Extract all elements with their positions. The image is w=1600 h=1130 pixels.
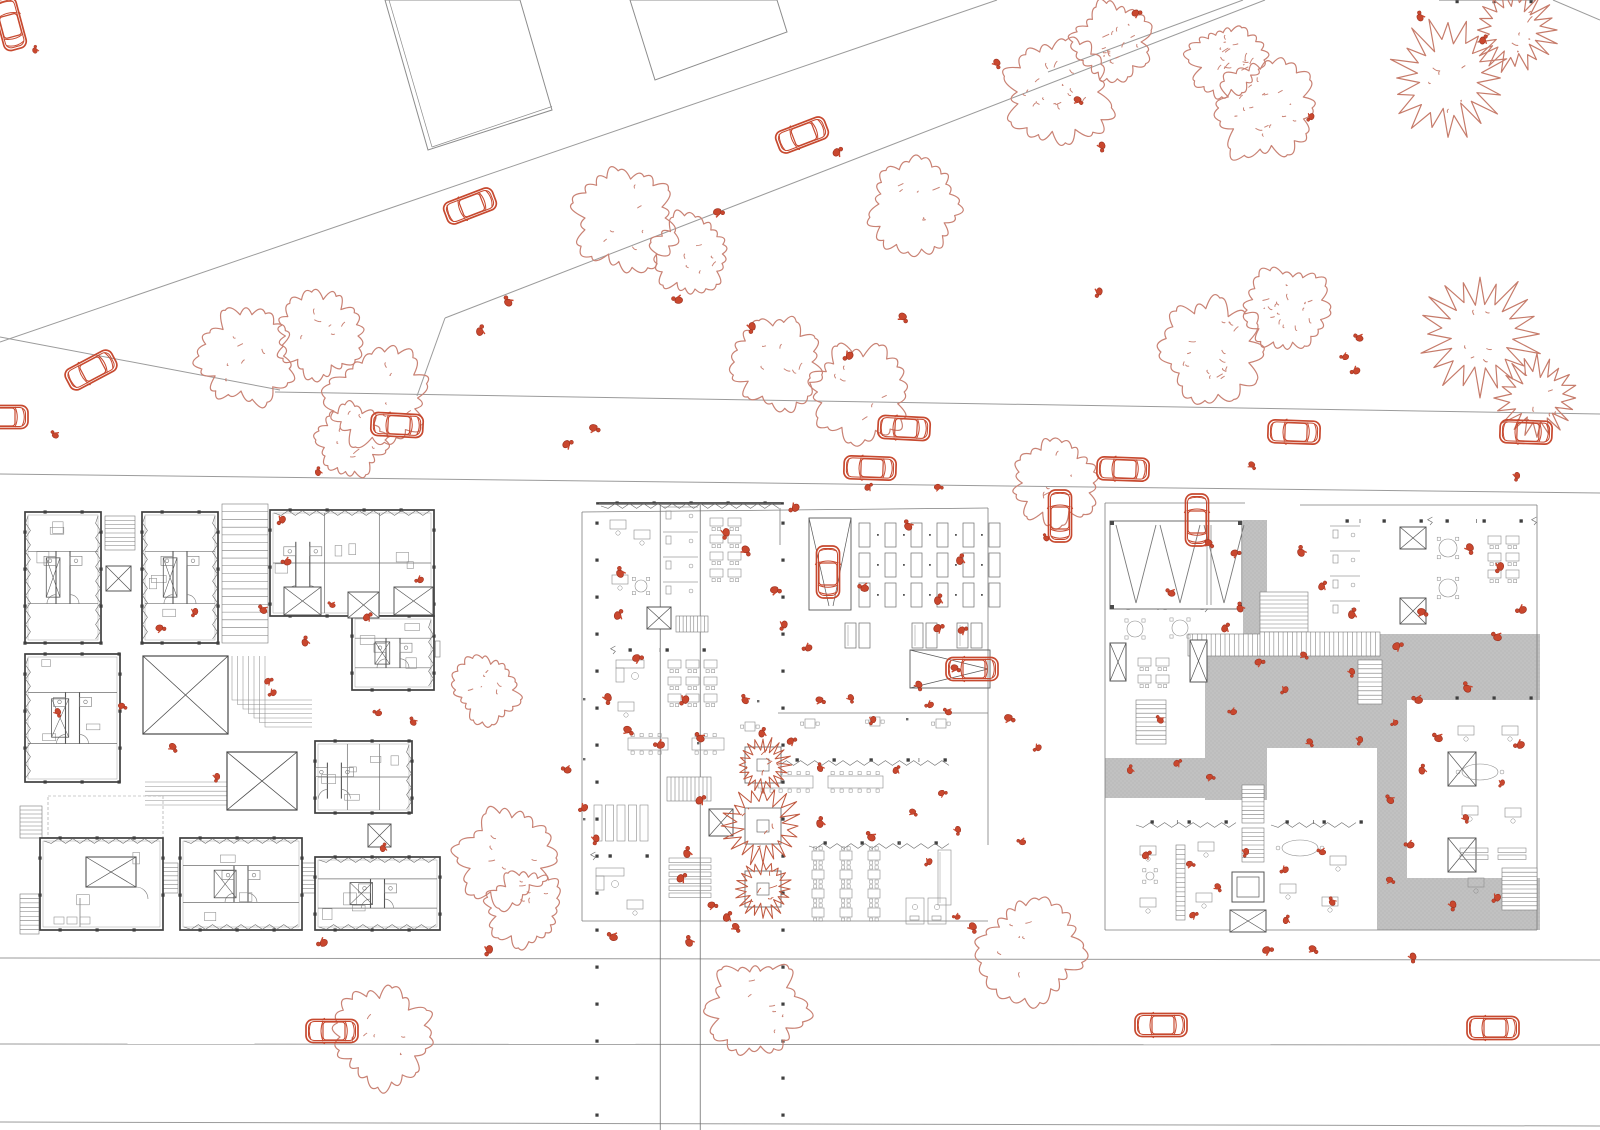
person-figure <box>952 913 960 919</box>
stair <box>1358 660 1382 704</box>
tree <box>1243 267 1331 349</box>
tree <box>1157 295 1264 405</box>
middle-building <box>582 501 1000 1130</box>
paved-path <box>1380 634 1540 696</box>
person-figure <box>863 481 875 493</box>
tree <box>1013 438 1099 529</box>
person-figure <box>1352 331 1365 343</box>
person-figure <box>481 944 494 958</box>
furniture <box>596 868 624 890</box>
person-figure <box>33 45 39 53</box>
person-figure <box>786 736 799 748</box>
person-figure <box>942 705 954 716</box>
person-figure <box>932 622 946 635</box>
person-figure <box>266 687 278 698</box>
building-block <box>1136 820 1236 827</box>
person-figure <box>922 856 934 868</box>
person-figure <box>938 789 948 797</box>
furniture <box>741 722 760 731</box>
person-figure <box>1031 742 1043 753</box>
person-figure <box>1296 544 1307 557</box>
person-figure <box>1092 286 1104 299</box>
person-figure <box>632 654 645 665</box>
stair <box>1260 632 1380 656</box>
person-figure <box>576 802 589 814</box>
site-plots <box>385 0 787 150</box>
furniture <box>1458 726 1474 741</box>
person-figure <box>675 871 689 885</box>
furniture <box>801 719 820 728</box>
furniture <box>616 660 644 682</box>
tree <box>451 806 557 911</box>
furniture <box>1488 536 1519 583</box>
furniture <box>710 518 741 582</box>
person-figure <box>777 619 789 632</box>
person-figure <box>1339 352 1349 360</box>
person-figure <box>588 423 602 435</box>
car <box>773 114 831 156</box>
person-figure <box>902 518 915 532</box>
person-figure <box>560 764 572 774</box>
person-figure <box>1496 778 1506 788</box>
person-figure <box>1016 836 1027 845</box>
person-figure <box>1278 864 1290 875</box>
stair <box>222 504 268 643</box>
furniture <box>1143 869 1158 884</box>
person-figure <box>831 145 845 159</box>
person-figure <box>845 694 855 705</box>
building-block <box>1439 0 1535 702</box>
stair <box>1176 845 1185 920</box>
tree <box>1494 353 1576 437</box>
furniture <box>1138 658 1169 688</box>
person-figure <box>653 739 664 748</box>
person-figure <box>475 324 487 337</box>
person-figure <box>1347 607 1359 621</box>
person-figure <box>896 311 910 325</box>
car <box>370 411 423 439</box>
person-figure <box>857 581 870 593</box>
person-figure <box>1349 365 1361 376</box>
person-figure <box>955 553 967 566</box>
tree <box>649 210 727 294</box>
person-figure <box>1408 953 1417 964</box>
person-figure <box>814 696 827 707</box>
person-figure <box>684 934 695 947</box>
furniture <box>1502 726 1518 741</box>
furniture <box>928 898 946 924</box>
person-figure <box>722 910 736 924</box>
shaft-x <box>394 587 433 615</box>
tree <box>483 871 560 950</box>
furniture <box>1196 893 1212 908</box>
person-figure <box>621 725 635 739</box>
person-figure <box>49 428 61 440</box>
person-figure <box>1003 713 1017 725</box>
person-figure <box>1463 543 1475 556</box>
person-figure <box>408 715 419 727</box>
tree <box>1183 26 1268 99</box>
building-block <box>1271 820 1363 827</box>
person-figure <box>949 663 962 675</box>
left-building <box>20 504 442 934</box>
site-plan-image <box>0 0 1600 1130</box>
person-figure <box>1262 945 1275 956</box>
shaft-x <box>1400 527 1426 549</box>
building-block <box>313 855 441 931</box>
building-block <box>38 836 164 931</box>
furniture <box>610 520 626 535</box>
furniture <box>932 719 951 728</box>
person-figure <box>1246 460 1257 472</box>
car <box>815 546 840 598</box>
car <box>1097 456 1150 483</box>
person-figure <box>907 807 919 818</box>
furniture <box>668 660 717 707</box>
building-block <box>140 510 219 644</box>
person-figure <box>1512 472 1521 482</box>
person-figure <box>786 501 800 514</box>
person-figure <box>816 816 826 828</box>
tree <box>704 964 813 1055</box>
stair <box>1242 785 1264 823</box>
person-figure <box>602 693 612 705</box>
car <box>1500 419 1553 446</box>
furniture <box>1437 577 1459 599</box>
building-block <box>350 614 435 691</box>
car <box>877 414 930 442</box>
person-figure <box>707 901 718 910</box>
tree <box>451 655 522 728</box>
person-figure <box>372 707 383 716</box>
car <box>0 0 29 52</box>
furniture <box>812 847 880 921</box>
tree <box>1478 0 1558 72</box>
car <box>844 455 897 482</box>
tree <box>975 897 1088 1008</box>
car <box>1135 1012 1187 1037</box>
person-figure <box>770 586 782 596</box>
person-figure <box>730 922 743 935</box>
plot-outline <box>385 0 552 150</box>
furniture <box>627 900 643 915</box>
car <box>62 347 120 394</box>
tree <box>332 985 433 1093</box>
car <box>1047 490 1072 542</box>
furniture <box>828 772 883 793</box>
person-figure <box>1072 95 1085 108</box>
roof-deck <box>227 752 297 810</box>
person-figure <box>613 608 627 622</box>
stair <box>163 863 178 893</box>
car <box>441 185 499 227</box>
building-block <box>1428 517 1537 525</box>
person-figure <box>1316 846 1327 856</box>
furniture <box>1330 526 1360 613</box>
building-block <box>178 836 303 931</box>
shaft-x <box>348 592 379 618</box>
tree <box>729 316 822 412</box>
elevator <box>1232 872 1264 902</box>
tree <box>808 343 907 446</box>
stair <box>1502 868 1537 910</box>
furniture <box>1280 884 1296 899</box>
person-figure <box>1431 730 1445 744</box>
person-figure <box>1097 142 1106 153</box>
furniture <box>1330 856 1346 871</box>
person-figure <box>315 466 322 475</box>
person-figure <box>866 715 877 727</box>
building-block <box>23 510 102 644</box>
person-figure <box>1317 579 1330 592</box>
furniture <box>669 858 711 898</box>
furniture <box>632 577 649 594</box>
person-figure <box>212 773 221 783</box>
person-figure <box>302 636 310 647</box>
furniture <box>938 850 951 905</box>
person-figure <box>1418 764 1427 775</box>
person-figure <box>1415 10 1425 22</box>
person-figure <box>1220 621 1233 634</box>
person-figure <box>1307 944 1320 957</box>
furniture <box>1125 619 1145 639</box>
person-figure <box>315 936 328 948</box>
shaft-x <box>1448 752 1476 786</box>
building-block <box>809 841 949 848</box>
building-block <box>1346 519 1423 523</box>
person-figure <box>1041 532 1051 542</box>
car <box>0 404 28 429</box>
person-figure <box>933 593 945 607</box>
furniture <box>594 805 648 841</box>
person-figure <box>991 58 1002 71</box>
site-plan-svg <box>0 0 1600 1130</box>
roof-deck <box>143 656 228 734</box>
planter-tree <box>735 862 791 919</box>
person-figure <box>615 565 626 578</box>
stair <box>20 894 39 934</box>
person-figure <box>671 293 684 304</box>
person-figure <box>923 700 934 710</box>
person-figure <box>913 680 924 692</box>
furniture <box>1498 848 1526 860</box>
shaft-x <box>284 587 321 615</box>
person-figure <box>1514 604 1527 615</box>
person-figure <box>167 742 180 755</box>
tree <box>867 155 963 257</box>
car <box>1467 1015 1519 1040</box>
person-figure <box>1512 739 1525 750</box>
stair <box>302 863 315 893</box>
stair <box>20 806 42 838</box>
furniture <box>634 530 650 545</box>
person-figure <box>590 834 600 846</box>
shaft-x <box>647 607 671 629</box>
person-figure <box>892 764 903 776</box>
tree <box>1391 19 1507 137</box>
furniture <box>1437 537 1459 559</box>
person-figure <box>561 438 575 451</box>
shaft-x <box>106 566 131 591</box>
tree <box>571 167 679 273</box>
furniture <box>663 507 698 594</box>
person-figure <box>746 322 756 334</box>
furniture <box>1198 842 1214 857</box>
person-figure <box>816 762 825 773</box>
furniture <box>1276 840 1324 856</box>
parking-area <box>809 518 1000 688</box>
person-figure <box>801 642 813 652</box>
building-block <box>313 739 413 814</box>
furniture <box>906 898 924 924</box>
shaft-x <box>1230 910 1266 932</box>
person-figure <box>1212 882 1223 894</box>
person-figure <box>966 922 978 936</box>
right-building <box>1105 0 1540 932</box>
plot-outline <box>630 0 787 80</box>
person-figure <box>1186 861 1196 870</box>
stair <box>105 516 135 550</box>
entry-canopy <box>1110 521 1244 609</box>
person-figure <box>864 828 878 842</box>
person-figure <box>1282 914 1292 925</box>
building-block <box>611 646 706 654</box>
building-block <box>23 652 121 783</box>
furniture <box>1140 898 1156 913</box>
shaft-x <box>368 824 391 847</box>
stair <box>1260 592 1308 632</box>
shaft-x <box>1190 640 1207 682</box>
tree <box>1214 58 1315 161</box>
building-block <box>591 852 649 860</box>
person-figure <box>605 929 619 942</box>
person-figure <box>953 826 961 836</box>
shaft-x <box>1110 643 1126 681</box>
furniture <box>1505 808 1521 823</box>
person-figure <box>683 846 692 858</box>
stair <box>676 616 708 632</box>
person-figure <box>1189 910 1200 920</box>
car <box>1268 419 1321 446</box>
tree <box>1421 277 1540 398</box>
furniture <box>618 702 634 717</box>
car <box>306 1018 358 1043</box>
person-figure <box>739 692 751 705</box>
furniture <box>1170 618 1190 638</box>
